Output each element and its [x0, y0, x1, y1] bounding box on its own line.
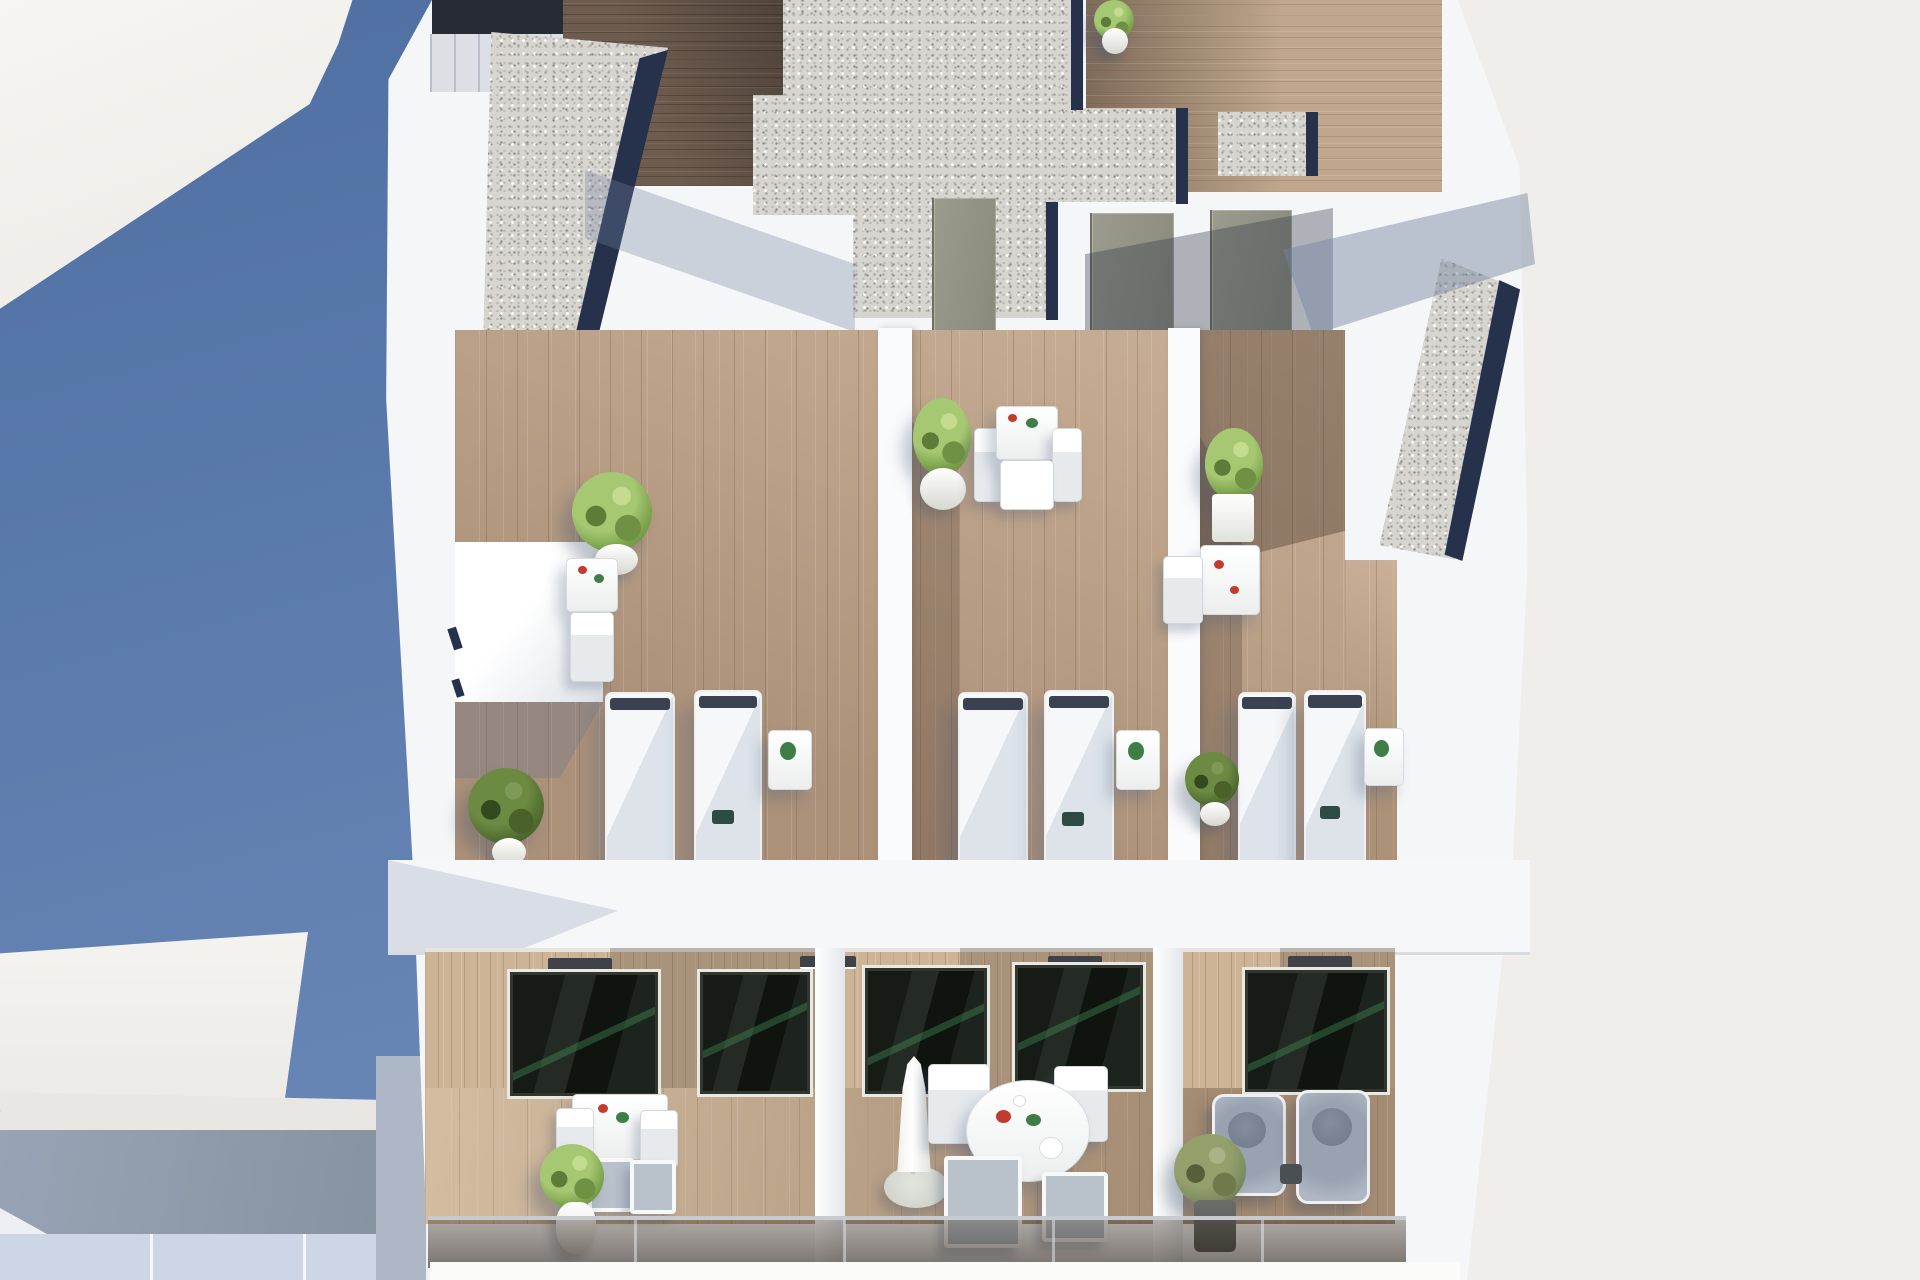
table-item-red	[996, 1110, 1011, 1123]
bistro-table-middle-terrace	[996, 406, 1058, 460]
plant-pot-top-deck	[1102, 28, 1128, 54]
table-item-green	[616, 1112, 629, 1123]
side-table-plant-left	[780, 742, 796, 760]
service-door-left	[932, 198, 996, 332]
sun-lounger-6	[1304, 690, 1366, 868]
table-item-red	[1214, 560, 1224, 569]
neighbor-shadow-wall	[0, 1130, 396, 1238]
glass-reflection	[700, 997, 810, 1065]
gravel-edge-patch	[1306, 112, 1318, 176]
lounger-side-table-middle	[1116, 730, 1160, 790]
bistro-chair-middle-right	[1052, 428, 1082, 502]
side-table-plant-middle	[1128, 742, 1144, 760]
bistro-pot-middle-terrace	[920, 468, 966, 510]
balcony1-plant	[540, 1144, 604, 1208]
parasol-base	[884, 1166, 948, 1208]
bistro-table-right-terrace	[1200, 545, 1260, 615]
lounger-headrest	[610, 698, 671, 710]
table-item-red	[1230, 586, 1239, 594]
bistro-plant-middle-terrace	[913, 398, 971, 476]
gravel-edge-central-2	[1176, 108, 1188, 204]
sun-lounger-5	[1238, 692, 1296, 868]
balcony3-plant	[1174, 1134, 1246, 1206]
bistro-chair-right-terrace	[1163, 556, 1203, 624]
bistro-chair-left-terrace	[570, 612, 614, 682]
bistro-table-left-terrace	[566, 558, 618, 612]
gravel-edge-central-3	[1046, 202, 1058, 320]
neighbor-roof-bottom-left	[0, 932, 308, 1110]
lounger-towel	[712, 810, 734, 824]
sliding-glass-door-1	[510, 972, 658, 1096]
glass-balustrade	[428, 1216, 1406, 1268]
building-front-base	[430, 1262, 1460, 1280]
side-table-plant-right	[1374, 740, 1389, 757]
sun-lounger-1	[605, 692, 675, 872]
table-item-plate	[1040, 1138, 1062, 1158]
lounger-headrest	[963, 698, 1024, 710]
table-item-red	[1008, 414, 1017, 422]
glass-reflection	[510, 998, 658, 1088]
balcony3-side-table	[1280, 1164, 1302, 1184]
table-item-green	[594, 574, 604, 583]
table-item-cup	[1014, 1096, 1025, 1106]
glass-reflection	[1015, 979, 1143, 1058]
balcony-pillar-1	[815, 948, 845, 1262]
bistro-plant-left-terrace	[572, 472, 652, 552]
front-plant-right-terrace	[1185, 752, 1239, 806]
lounger-headrest	[1242, 697, 1292, 709]
armchair-cushion-2	[1312, 1108, 1352, 1146]
lounger-towel	[1062, 812, 1084, 826]
lounger-headrest	[699, 696, 758, 708]
lounger-towel	[1320, 806, 1340, 819]
door-vent-1	[548, 958, 612, 971]
table-item-red	[598, 1104, 608, 1113]
fascia-band	[388, 860, 1530, 955]
table-item-red	[578, 566, 587, 574]
lounger-side-table-right	[1364, 728, 1404, 786]
front-pot-right-terrace	[1200, 802, 1230, 826]
dark-roof-slab	[432, 0, 574, 36]
balcony1-stool-2	[630, 1160, 676, 1214]
terrace-divider-wall-a	[878, 328, 912, 868]
lounger-side-table-left	[768, 730, 812, 790]
sun-lounger-2	[694, 690, 762, 872]
bistro-plant-right-terrace	[1205, 428, 1263, 500]
glass-reflection	[1245, 993, 1387, 1080]
sun-lounger-3	[958, 692, 1028, 872]
sliding-glass-door-2	[700, 972, 810, 1094]
bistro-stool-middle	[1000, 460, 1054, 510]
lounger-headrest	[1308, 695, 1361, 707]
balustrade-panel-seams	[428, 1220, 1406, 1268]
render-stage	[0, 0, 1920, 1280]
gravel-patch-top-right	[1218, 112, 1318, 176]
glass-reflection	[865, 997, 987, 1072]
door-vent-4	[1288, 956, 1352, 969]
table-item-green	[1026, 1114, 1041, 1126]
gravel-edge-central-1	[1071, 0, 1083, 110]
sliding-glass-door-5	[1245, 970, 1387, 1092]
lounger-headrest	[1049, 696, 1110, 708]
table-item-green	[1026, 418, 1038, 428]
sun-lounger-4	[1044, 690, 1114, 872]
front-plant-left-terrace	[468, 768, 544, 844]
balcony-pillar-2	[1153, 948, 1183, 1262]
bistro-pot-right-terrace	[1212, 494, 1254, 542]
